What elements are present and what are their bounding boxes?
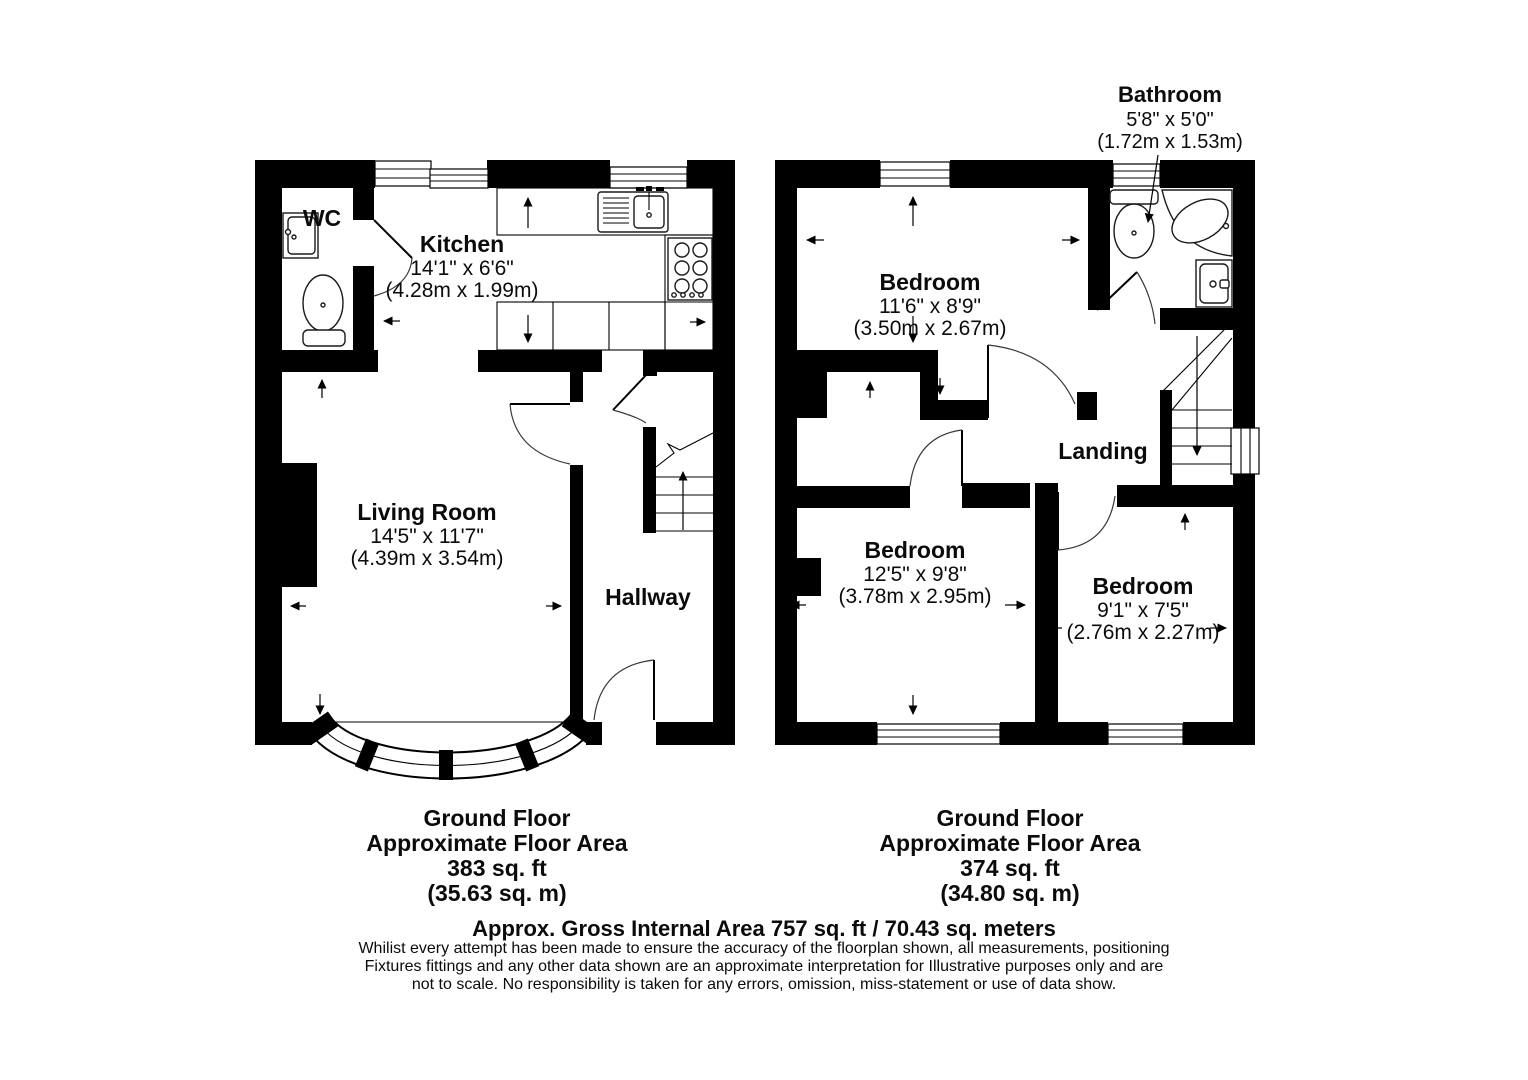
kitchen-sink-icon (598, 186, 668, 232)
wall (643, 427, 656, 533)
disclaimer-line-3: not to scale. No responsibility is taken… (412, 976, 1116, 993)
gross-internal-area: Approx. Gross Internal Area 757 sq. ft /… (472, 916, 1056, 941)
room-label-bathroom: Bathroom (1118, 82, 1222, 107)
stairs-down-icon (1162, 322, 1232, 464)
ground-floor-plan: WC Kitchen 14'1" x 6'6" (4.28m x 1.99m) … (255, 160, 735, 780)
wall (775, 722, 877, 745)
chimney-breast (282, 463, 317, 587)
disclaimer-line-2: Fixtures fittings and any other data sho… (365, 958, 1164, 975)
room-dims-bedroom-front: 11'6" x 8'9" (879, 295, 981, 318)
room-label-bedroom-middle: Bedroom (865, 537, 966, 563)
bedroom-window (1108, 724, 1183, 744)
wall (935, 400, 988, 420)
room-dims-living-room: 14'5" x 11'7" (370, 525, 484, 548)
wall (478, 350, 602, 372)
floor-subtitle: Approximate Floor Area (879, 830, 1140, 856)
wall (1160, 308, 1233, 330)
wall (656, 722, 735, 745)
wall (1088, 188, 1110, 310)
room-dims-bedroom-middle-metric: (3.78m x 2.95m) (839, 585, 992, 608)
wall (775, 160, 797, 745)
wall (353, 266, 374, 352)
bath-icon (1162, 190, 1235, 256)
door-swing (613, 374, 647, 423)
bathroom-sink-icon (1196, 260, 1232, 307)
wall (255, 160, 282, 745)
room-dims-kitchen-metric: (4.28m x 1.99m) (386, 279, 539, 302)
room-dims-living-room-metric: (4.39m x 3.54m) (351, 547, 504, 570)
wall (487, 160, 610, 188)
wall (353, 188, 374, 220)
room-dims-kitchen: 14'1" x 6'6" (410, 257, 514, 280)
room-dims-bedroom-front-metric: (3.50m x 2.67m) (854, 317, 1007, 340)
room-label-wc: WC (303, 205, 341, 231)
wall (962, 483, 1030, 508)
room-label-living-room: Living Room (357, 499, 496, 525)
front-door-swing (594, 660, 654, 720)
floor-area-imperial: 383 sq. ft (447, 855, 547, 881)
wall (1183, 722, 1255, 745)
kitchen-window (610, 167, 687, 188)
first-floor-plan: Bedroom 11'6" x 8'9" (3.50m x 2.67m) Lan… (775, 82, 1259, 745)
bedroom-window (877, 724, 1000, 744)
door-swing (910, 430, 962, 486)
wall (1117, 485, 1233, 507)
room-label-hallway: Hallway (605, 584, 691, 610)
room-dims-bathroom-metric: (1.72m x 1.53m) (1097, 131, 1243, 153)
hob-icon (668, 238, 712, 300)
floor-title: Ground Floor (937, 805, 1084, 831)
kitchen-window (375, 161, 488, 188)
bathroom-window (1113, 164, 1160, 186)
chimney-breast (797, 372, 827, 418)
wall (643, 350, 657, 376)
wc-toilet-icon (303, 275, 345, 346)
room-label-kitchen: Kitchen (420, 231, 504, 257)
wall (1000, 722, 1108, 745)
floorplan-page: WC Kitchen 14'1" x 6'6" (4.28m x 1.99m) … (0, 0, 1528, 1080)
wall (1160, 390, 1172, 488)
wall (255, 722, 312, 745)
wall (645, 350, 735, 372)
wall (950, 160, 1113, 188)
floor-subtitle: Approximate Floor Area (366, 830, 627, 856)
chimney-breast (797, 558, 821, 596)
door-swing (988, 345, 1075, 418)
room-dims-bedroom-back-metric: (2.76m x 2.27m) (1067, 621, 1220, 644)
wall (1035, 483, 1058, 722)
room-dims-bathroom: 5'8" x 5'0" (1126, 109, 1213, 131)
disclaimer-line-1: Whilist every attempt has been made to e… (358, 940, 1169, 957)
summary-block: Approx. Gross Internal Area 757 sq. ft /… (358, 916, 1169, 993)
wall (1077, 392, 1097, 420)
right-plan-footer: Ground Floor Approximate Floor Area 374 … (879, 805, 1140, 906)
wall (255, 350, 378, 372)
stairs-window (1231, 428, 1259, 474)
wall (713, 160, 735, 745)
wall (1233, 160, 1255, 430)
floorplan-canvas: WC Kitchen 14'1" x 6'6" (4.28m x 1.99m) … (0, 0, 1528, 1080)
left-plan-footer: Ground Floor Approximate Floor Area 383 … (366, 805, 627, 906)
bay-window (302, 711, 599, 780)
wall (797, 486, 910, 508)
room-label-bedroom-back: Bedroom (1093, 573, 1194, 599)
door-swing (510, 404, 570, 464)
floor-area-metric: (34.80 sq. m) (940, 880, 1079, 906)
room-label-landing: Landing (1058, 438, 1147, 464)
wall (570, 465, 583, 722)
floor-title: Ground Floor (424, 805, 571, 831)
floor-area-metric: (35.63 sq. m) (427, 880, 566, 906)
wall (570, 360, 583, 402)
wall (1233, 472, 1255, 745)
floor-area-imperial: 374 sq. ft (960, 855, 1060, 881)
bedroom-window (880, 162, 950, 186)
stairs-up-icon (656, 433, 713, 531)
door-swing (1058, 492, 1115, 550)
room-label-bedroom-front: Bedroom (880, 269, 981, 295)
room-dims-bedroom-back: 9'1" x 7'5" (1097, 599, 1189, 622)
wall (797, 350, 937, 372)
room-dims-bedroom-middle: 12'5" x 9'8" (863, 563, 967, 586)
